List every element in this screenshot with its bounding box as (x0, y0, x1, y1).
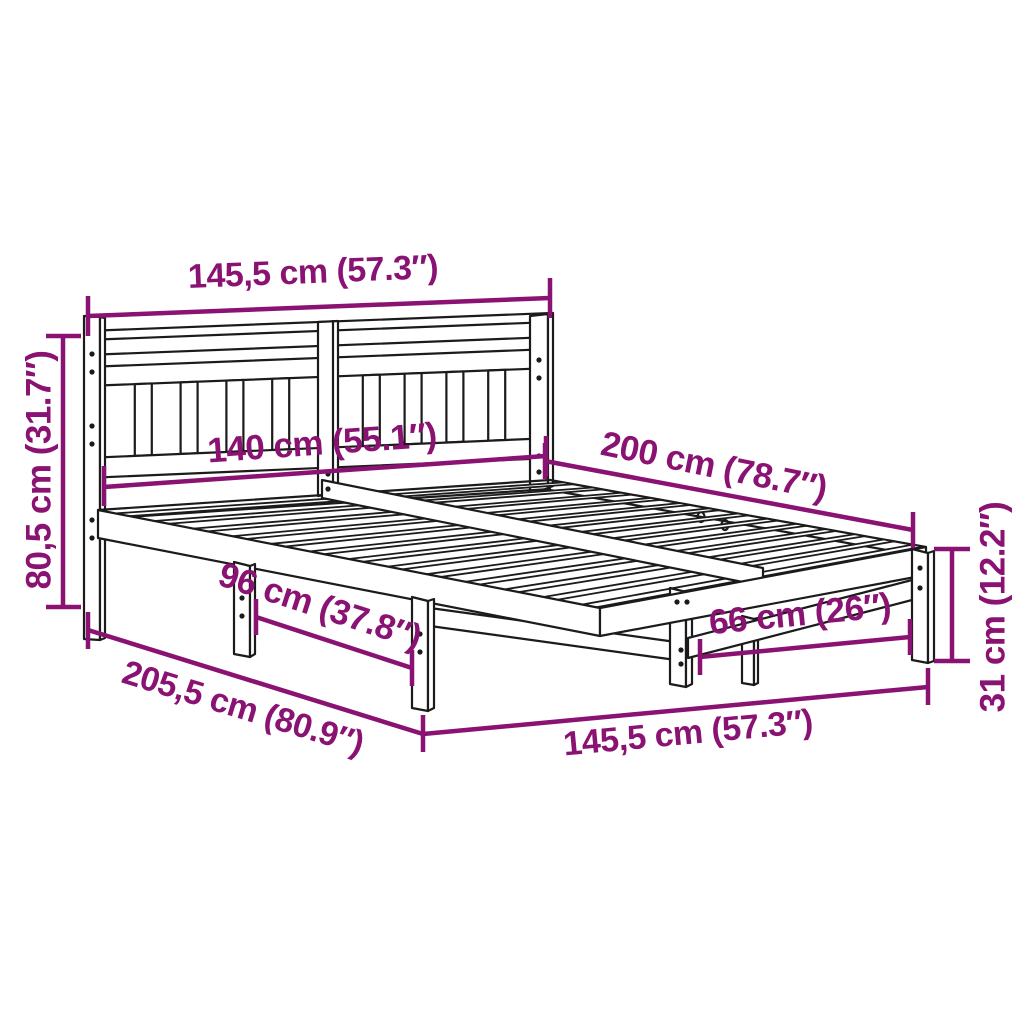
headboard-baluster (488, 370, 505, 441)
dim-leg-height-line (934, 549, 970, 661)
headboard-baluster (446, 371, 463, 442)
headboard-left-post (84, 316, 100, 640)
dim-headboard-height-label: 80,5 cm (31.7″) (22, 351, 57, 590)
dim-top-width-label: 145,5 cm (57.3″) (187, 250, 438, 294)
bed-frame-line-art (0, 0, 1024, 1024)
headboard-baluster (181, 382, 198, 454)
diagram-canvas: 145,5 cm (57.3″) 80,5 cm (31.7″) 140 cm … (0, 0, 1024, 1024)
headboard-baluster (135, 383, 152, 455)
dim-leg-height-label: 31 cm (12.2″) (976, 502, 1011, 713)
